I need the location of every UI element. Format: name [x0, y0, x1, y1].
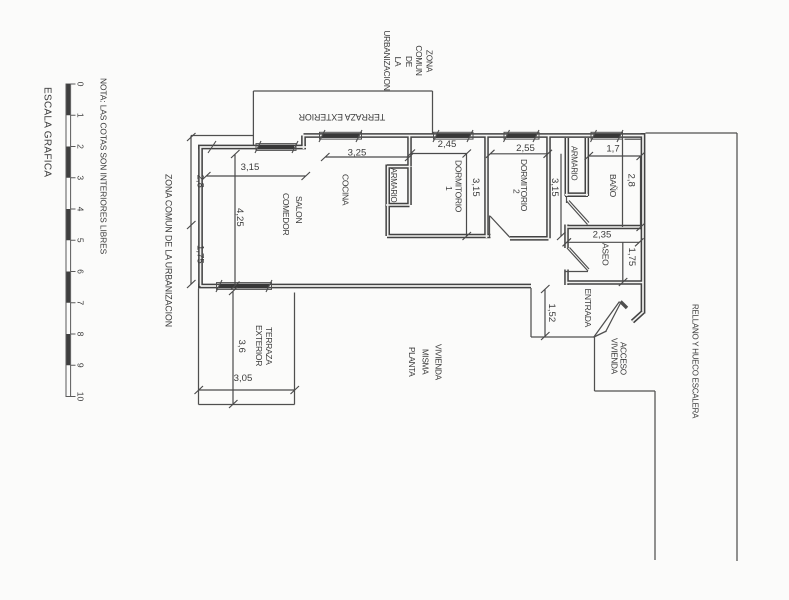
svg-text:0: 0 [76, 82, 86, 87]
svg-text:2,55: 2,55 [516, 143, 535, 154]
svg-text:4,25: 4,25 [234, 208, 245, 227]
svg-text:TERRAZA: TERRAZA [264, 327, 274, 365]
svg-text:DORMITORIO: DORMITORIO [519, 159, 529, 212]
svg-text:ZONA: ZONA [425, 50, 435, 73]
svg-text:3: 3 [76, 175, 86, 180]
svg-text:NOTA: LAS COTAS SON INTERIORES: NOTA: LAS COTAS SON INTERIORES LIBRES [99, 78, 109, 255]
svg-text:COMUN: COMUN [414, 45, 424, 76]
svg-text:MISMA: MISMA [421, 349, 430, 375]
svg-text:3,6: 3,6 [236, 340, 247, 353]
svg-text:8: 8 [76, 332, 86, 337]
svg-text:1,7: 1,7 [606, 144, 619, 155]
svg-text:6: 6 [76, 269, 86, 274]
svg-text:COMEDOR: COMEDOR [281, 193, 291, 235]
svg-text:1,52: 1,52 [546, 304, 557, 323]
svg-text:ACCESO: ACCESO [619, 342, 628, 375]
svg-text:ESCALA GRAFICA: ESCALA GRAFICA [42, 87, 53, 177]
svg-text:2: 2 [512, 189, 522, 194]
svg-text:2,45: 2,45 [438, 139, 457, 150]
svg-text:3,15: 3,15 [549, 178, 560, 197]
svg-text:5: 5 [76, 238, 86, 243]
svg-text:3,25: 3,25 [348, 148, 367, 159]
svg-text:ENTRADA: ENTRADA [583, 289, 593, 328]
svg-text:TERRAZA EXTERIOR: TERRAZA EXTERIOR [299, 112, 385, 122]
svg-text:BAÑO: BAÑO [608, 174, 618, 198]
svg-text:DE: DE [404, 56, 414, 68]
svg-text:2: 2 [76, 144, 86, 149]
svg-text:DORMITORIO: DORMITORIO [454, 160, 464, 213]
svg-text:EXTERIOR: EXTERIOR [254, 325, 264, 366]
svg-text:1: 1 [444, 186, 454, 191]
svg-text:7: 7 [76, 300, 86, 305]
svg-text:RELLANO Y HUECO ESCALERA: RELLANO Y HUECO ESCALERA [691, 304, 700, 419]
svg-text:1,75: 1,75 [195, 245, 206, 264]
svg-text:PLANTA: PLANTA [407, 347, 416, 377]
svg-text:2,35: 2,35 [593, 230, 612, 241]
svg-text:COCINA: COCINA [341, 174, 351, 206]
svg-text:3,15: 3,15 [241, 162, 260, 173]
svg-text:3,05: 3,05 [234, 373, 253, 384]
svg-text:2,8: 2,8 [626, 174, 637, 187]
svg-text:VIVIENDA: VIVIENDA [434, 344, 443, 381]
svg-text:3,15: 3,15 [470, 178, 481, 197]
svg-text:URBANIZACION: URBANIZACION [382, 30, 392, 91]
svg-text:1,75: 1,75 [626, 248, 637, 267]
svg-text:LA: LA [393, 57, 403, 67]
svg-text:4: 4 [76, 207, 86, 212]
svg-text:ZONA COMUN DE LA URBANIZACION: ZONA COMUN DE LA URBANIZACION [164, 174, 174, 327]
svg-text:ARMARIO: ARMARIO [570, 146, 579, 181]
svg-text:VIVIENDA: VIVIENDA [610, 338, 619, 375]
svg-text:ASEO: ASEO [601, 243, 611, 266]
svg-text:ARMARIO: ARMARIO [389, 168, 398, 203]
svg-text:SALON: SALON [294, 196, 304, 223]
svg-text:2,8: 2,8 [195, 175, 206, 188]
svg-text:1: 1 [76, 113, 86, 118]
svg-text:9: 9 [76, 363, 86, 368]
svg-text:10: 10 [76, 392, 86, 402]
